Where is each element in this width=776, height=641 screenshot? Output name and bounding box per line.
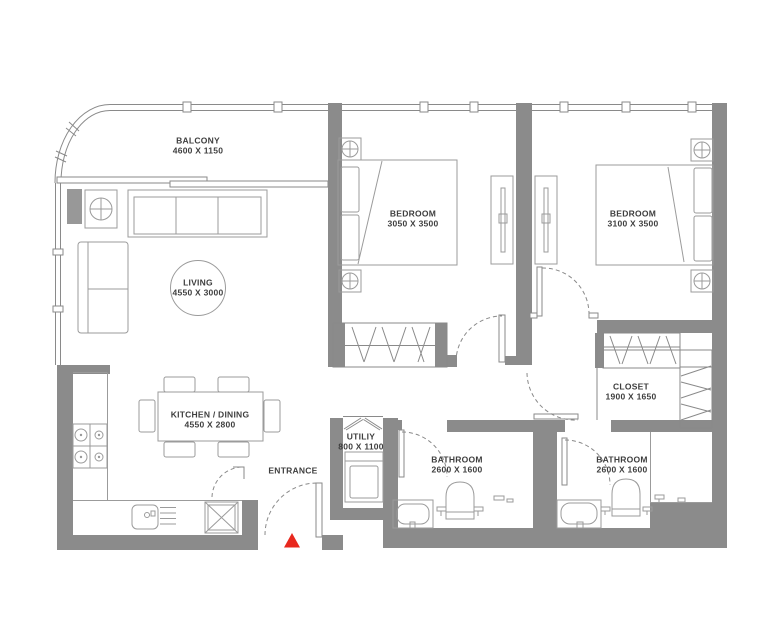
nightstand-lamp: [691, 270, 713, 292]
window-mullion: [420, 102, 428, 112]
nightstand-lamp: [339, 270, 361, 292]
room-label-living: LIVING 4550 X 3000: [173, 279, 224, 298]
bedroom-1-door-swing: [456, 316, 502, 362]
closet-door-swing: [527, 373, 578, 420]
closet-furniture: [597, 333, 712, 428]
floor-plan: BALCONY 4600 X 1150 LIVING 4550 X 3000 B…: [0, 0, 776, 641]
kitchen-door: [233, 467, 244, 479]
bedroom-2-door-swing: [542, 268, 589, 314]
entrance-door-swing: [265, 483, 317, 535]
bedroom-2-door: [537, 267, 542, 316]
wardrobe: [333, 323, 447, 367]
shower-fittings: [494, 496, 513, 502]
nightstand-lamp: [691, 139, 713, 161]
balcony-sliding-door: [170, 181, 328, 187]
shower-area: [650, 432, 712, 503]
balcony-curved-wall: [55, 105, 110, 184]
entrance-door: [316, 483, 322, 537]
room-label-bathroom-1: BATHROOM 2600 X 1600: [431, 456, 482, 475]
window-mullion: [53, 249, 63, 255]
bathroom-1-door: [399, 430, 404, 477]
stove: [73, 424, 107, 468]
toilet: [446, 482, 474, 519]
room-label-closet: CLOSET 1900 X 1650: [606, 383, 657, 402]
floor-plan-drawing: [0, 0, 776, 641]
room-label-bedroom-2: BEDROOM 3100 X 3500: [608, 210, 659, 229]
closet-wardrobe: [603, 333, 680, 368]
closet-shelving: [680, 350, 712, 428]
window-mullion: [622, 102, 630, 112]
room-label-balcony: BALCONY 4600 X 1150: [173, 137, 224, 156]
dishwasher: [205, 502, 238, 533]
bathroom-1-fixtures: [393, 482, 513, 528]
side-table-lamp: [85, 190, 117, 228]
room-label-bedroom-1: BEDROOM 3050 X 3500: [388, 210, 439, 229]
nightstand-lamp: [339, 138, 361, 160]
tv-console: [67, 189, 82, 224]
window-mullion: [688, 102, 696, 112]
kitchen-door-swing: [212, 467, 243, 497]
vanity-sink: [557, 500, 601, 528]
window-mullion: [53, 306, 63, 312]
kitchen-sink: [132, 505, 176, 529]
room-label-kitchen-dining: KITCHEN / DINING 4550 X 2800: [171, 411, 250, 430]
walls: [57, 103, 727, 550]
toilet: [612, 479, 640, 516]
room-label-bathroom-2: BATHROOM 2600 X 1600: [596, 456, 647, 475]
living-window-wall: [56, 183, 61, 365]
tv-panel: [535, 176, 557, 264]
window-mullion: [183, 102, 191, 112]
vanity-sink: [393, 500, 433, 528]
window-mullion: [274, 102, 282, 112]
entrance-marker-icon: [284, 533, 300, 548]
utility-folding-door: [344, 418, 382, 430]
bedroom-1-furniture: [333, 138, 513, 367]
window-mullion: [470, 102, 478, 112]
entrance-label: ENTRANCE: [268, 466, 317, 476]
utility-furniture: [345, 452, 383, 502]
window-mullion: [560, 102, 568, 112]
armchair: [78, 242, 128, 333]
bedroom-1-door: [499, 315, 505, 362]
room-label-utility: UTILIY 800 X 1100: [338, 433, 384, 452]
wall-taps: [601, 507, 652, 515]
living-furniture: [67, 189, 267, 333]
closet-door: [534, 414, 578, 419]
tv-panel: [491, 176, 513, 264]
bathroom-2-door: [562, 438, 567, 485]
sofa: [128, 190, 267, 237]
washing-machine: [345, 452, 383, 502]
